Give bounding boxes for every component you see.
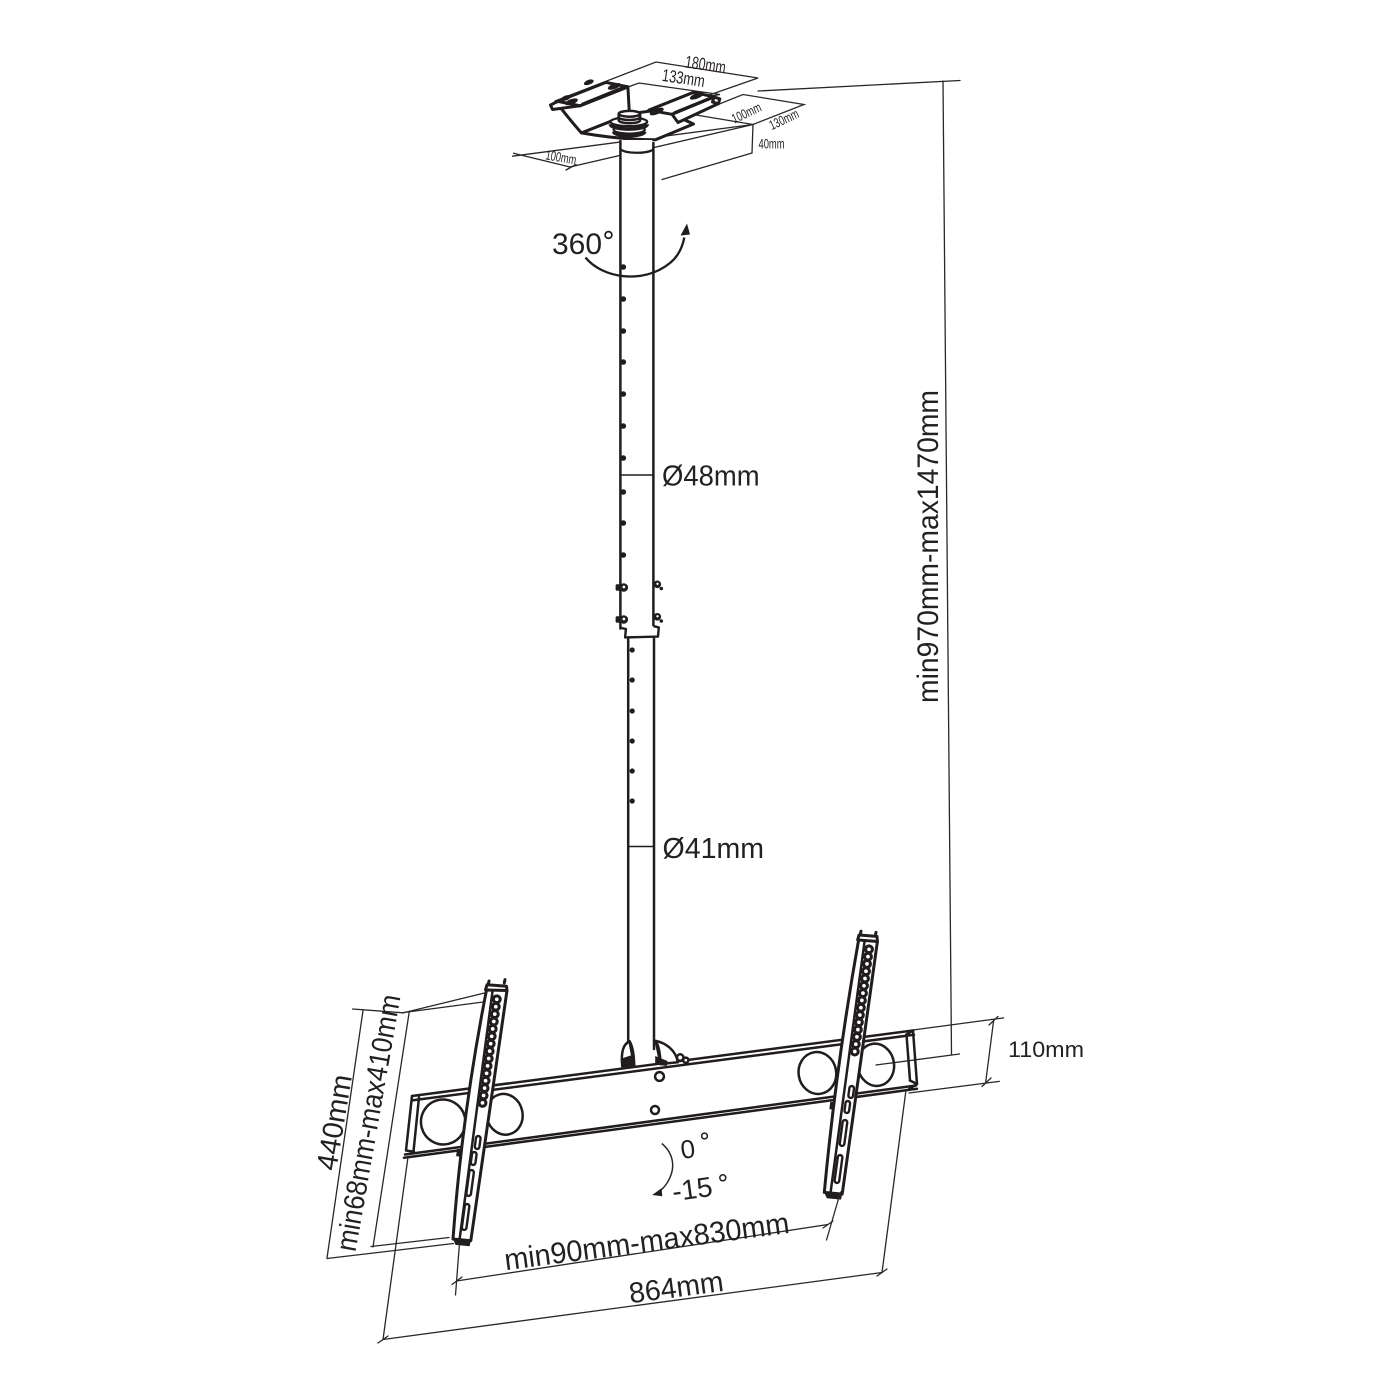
svg-text:110mm: 110mm [1008, 1037, 1084, 1062]
svg-text:Ø41mm: Ø41mm [663, 833, 765, 865]
svg-text:min970mm-max1470mm: min970mm-max1470mm [912, 390, 945, 703]
svg-text:40mm: 40mm [759, 137, 785, 152]
svg-text:Ø48mm: Ø48mm [662, 461, 760, 493]
svg-text:360: 360 [552, 228, 602, 261]
svg-text:-15: -15 [670, 1171, 714, 1207]
